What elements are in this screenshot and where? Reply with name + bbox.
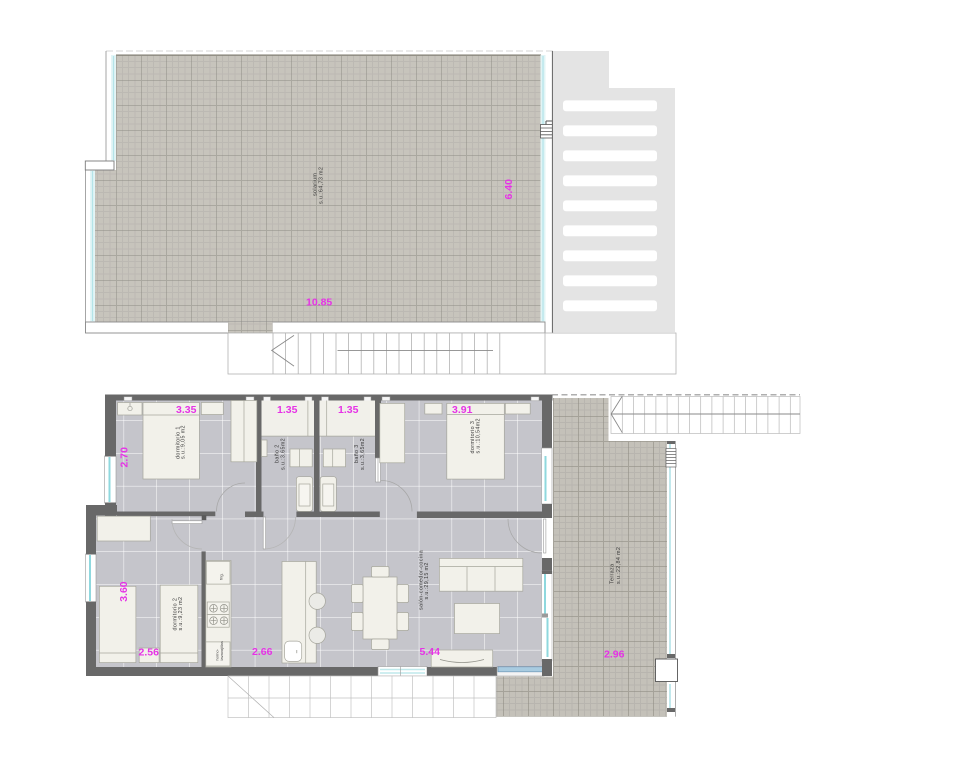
svg-text:s.u.:64,73 m2: s.u.:64,73 m2 (319, 167, 325, 204)
svg-text:s.u.:3,65m2: s.u.:3,65m2 (360, 438, 366, 470)
svg-text:2.96: 2.96 (604, 649, 625, 661)
svg-text:s.u.:3,65m2: s.u.:3,65m2 (280, 438, 286, 470)
svg-text:2.56: 2.56 (139, 647, 160, 659)
svg-text:1.35: 1.35 (338, 404, 359, 416)
svg-text:frig.: frig. (219, 573, 224, 580)
svg-text:1.35: 1.35 (277, 404, 298, 416)
svg-text:s.u.:29,15 m2: s.u.:29,15 m2 (424, 562, 430, 599)
svg-text:10.85: 10.85 (306, 297, 332, 309)
svg-text:Terraza: Terraza (610, 564, 616, 584)
svg-text:5.44: 5.44 (420, 646, 441, 658)
svg-text:s.u.:9,05 m2: s.u.:9,05 m2 (181, 425, 187, 459)
svg-text:s.u.:10,54m2: s.u.:10,54m2 (475, 418, 481, 453)
svg-text:s.u.:22,84 m2: s.u.:22,84 m2 (616, 547, 622, 584)
svg-text:3.35: 3.35 (176, 404, 197, 416)
svg-text:2.70: 2.70 (119, 447, 131, 468)
svg-text:3.91: 3.91 (452, 404, 473, 416)
svg-text:lavavajillas: lavavajillas (219, 641, 224, 660)
svg-text:2.66: 2.66 (252, 646, 273, 658)
svg-text:6.40: 6.40 (503, 179, 515, 200)
svg-text:s.u.:9,23 m2: s.u.:9,23 m2 (178, 597, 184, 631)
svg-text:3.60: 3.60 (118, 581, 130, 602)
